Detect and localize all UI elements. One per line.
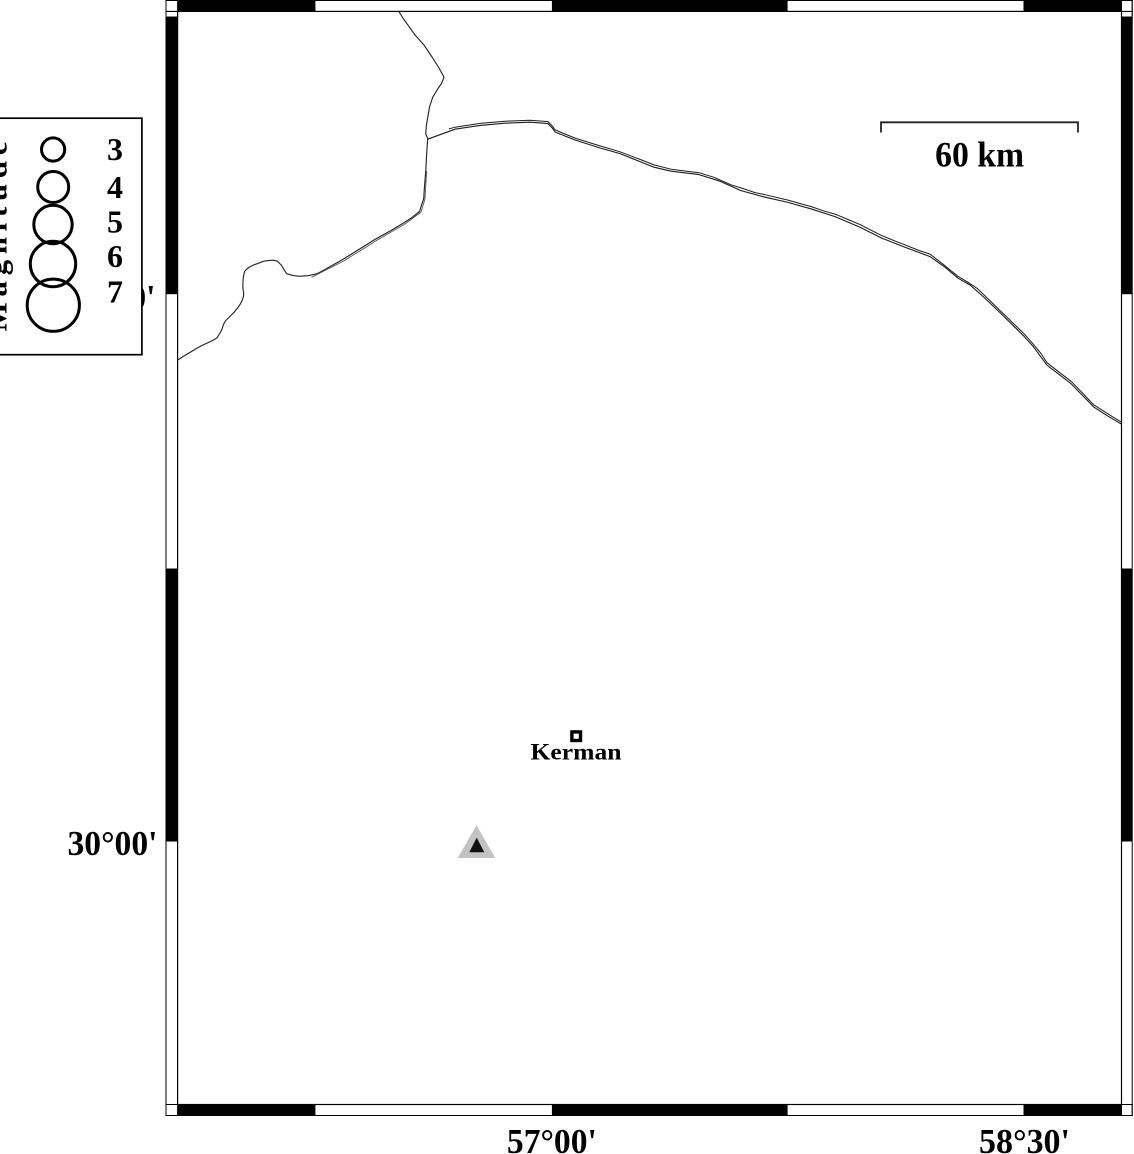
svg-text:5: 5 [107, 203, 123, 239]
svg-text:4: 4 [107, 169, 123, 205]
svg-text:6: 6 [107, 238, 123, 274]
svg-text:58°30': 58°30' [979, 1122, 1070, 1154]
svg-text:3: 3 [107, 131, 123, 167]
svg-text:30°00': 30°00' [68, 824, 158, 863]
svg-text:57°00': 57°00' [507, 1122, 597, 1154]
svg-text:60 km: 60 km [935, 135, 1024, 175]
svg-text:Kerman: Kerman [531, 740, 622, 766]
svg-text:7: 7 [107, 273, 123, 309]
